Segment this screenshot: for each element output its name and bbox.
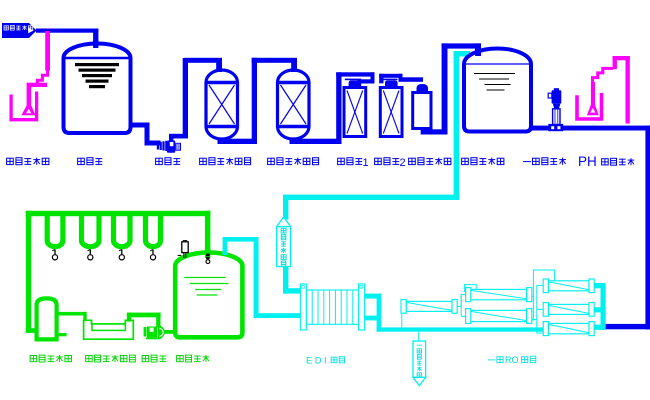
svg-text:EDI: EDI — [306, 356, 329, 367]
svg-text:1: 1 — [363, 157, 369, 169]
svg-text:RO: RO — [505, 355, 519, 365]
svg-text:PH: PH — [578, 154, 597, 169]
svg-text:2: 2 — [400, 157, 406, 169]
